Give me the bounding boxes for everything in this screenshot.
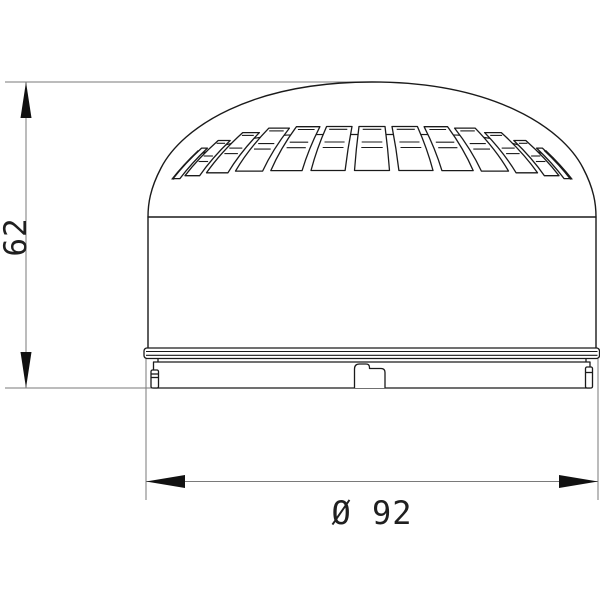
base-clip-right: [586, 367, 593, 388]
base-plate: [151, 359, 593, 389]
diameter-arrow-left: [146, 475, 185, 488]
dome-and-body-silhouette: [148, 82, 596, 350]
height-dimension-label: 62: [0, 217, 34, 256]
height-arrow-down: [21, 352, 32, 388]
technical-drawing-page: 62 Ø 92: [0, 0, 600, 600]
rim-outline: [144, 348, 600, 359]
rim-flange: [144, 348, 600, 359]
vent-slots: [172, 127, 573, 180]
height-arrow-up: [21, 82, 32, 118]
vent-slot: [355, 127, 390, 171]
base-clip-left: [151, 370, 159, 388]
diameter-arrow-right: [559, 475, 598, 488]
device-outline: [148, 82, 596, 350]
sounder-drawing-svg: 62 Ø 92: [0, 0, 600, 600]
diameter-dimension-label: Ø 92: [331, 494, 412, 532]
base-cable-tab: [355, 364, 386, 388]
